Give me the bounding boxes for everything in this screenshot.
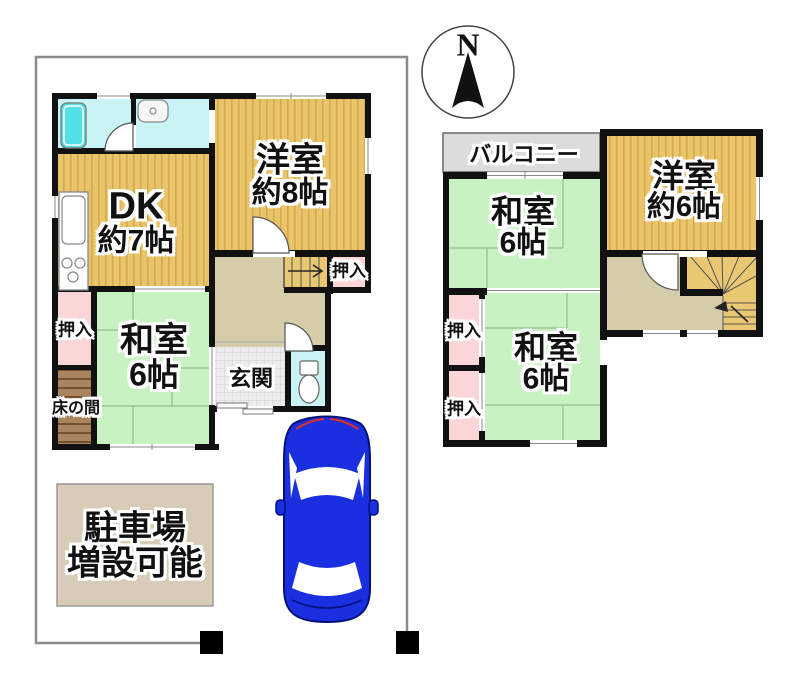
room-label-dk: DK 約7帖	[98, 187, 175, 256]
closet2-lower-label: 押入	[447, 400, 481, 417]
boundary-marker-right	[396, 631, 419, 654]
tokonoma-label: 床の間	[52, 401, 100, 417]
compass-n-label: N	[456, 29, 479, 62]
car-illustration	[276, 417, 378, 623]
balcony-label: バルコニー	[469, 144, 579, 166]
hall2-nook-floor	[687, 296, 723, 330]
closet-left-label: 押入	[58, 321, 92, 338]
toilet-icon	[299, 361, 319, 403]
closet-stairs-label: 押入	[332, 262, 366, 279]
room-label-japanese-1f: 和室 6帖	[120, 323, 188, 390]
room-label-japanese-2f-upper: 和室 6帖	[491, 195, 555, 258]
floor-plan-canvas: N DK 約7帖 洋室 約8帖 和室 6帖 押入 押入 床の間 玄関 駐車場 増…	[0, 0, 800, 684]
parking-label: 駐車場 増設可能	[67, 511, 203, 580]
room-label-western-6: 洋室 約6帖	[647, 160, 721, 222]
sink-icon	[138, 100, 168, 122]
room-label-japanese-2f-lower: 和室 6帖	[514, 331, 578, 394]
closet2-upper-label: 押入	[447, 322, 481, 339]
boundary-marker-left	[200, 631, 223, 654]
room-label-western-8: 洋室 約8帖	[252, 143, 329, 208]
bathtub-icon	[61, 103, 86, 148]
entrance-label: 玄関	[229, 368, 273, 390]
kitchen-counter-icon	[59, 192, 88, 290]
stairs-1f	[284, 257, 327, 288]
